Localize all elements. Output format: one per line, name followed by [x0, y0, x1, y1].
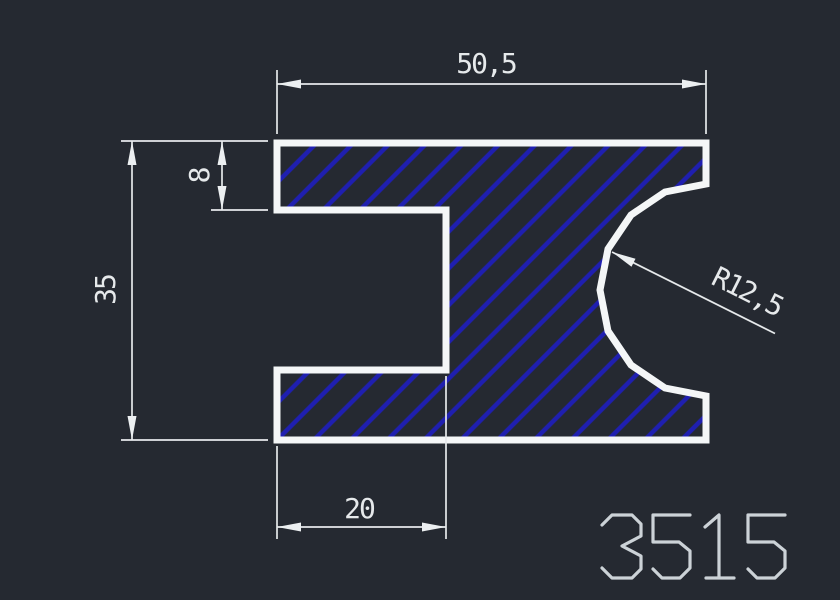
arrowhead-left	[277, 523, 301, 532]
dim-flange-label: 8	[183, 167, 216, 183]
dim-height-label: 35	[89, 275, 122, 305]
part-number: 3515	[602, 515, 785, 578]
cad-drawing-canvas: 50,5 35 8 20 R12,5 3515	[0, 0, 840, 600]
dim-overall-width: 50,5	[277, 47, 706, 134]
dim-flange-thickness: 8	[183, 141, 268, 210]
arrowhead-right	[682, 80, 706, 89]
dim-width-label: 50,5	[456, 47, 516, 80]
dim-slot-label: 20	[344, 492, 375, 525]
leader-notch-radius: R12,5	[612, 252, 788, 334]
technical-drawing: 50,5 35 8 20 R12,5 3515	[0, 0, 840, 600]
dim-overall-height: 35	[89, 141, 268, 440]
arrowhead-bottom	[128, 416, 137, 440]
arrowhead-bottom	[218, 186, 227, 210]
arrowhead-top	[218, 141, 227, 165]
arrowhead-right	[422, 523, 446, 532]
digit-3	[602, 515, 641, 578]
arrowhead-top	[128, 141, 137, 165]
digit-5b	[748, 515, 785, 578]
radius-label: R12,5	[707, 260, 788, 323]
arrowhead-leader	[612, 252, 636, 267]
arrowhead-left	[277, 80, 301, 89]
profile-outline	[277, 143, 706, 440]
